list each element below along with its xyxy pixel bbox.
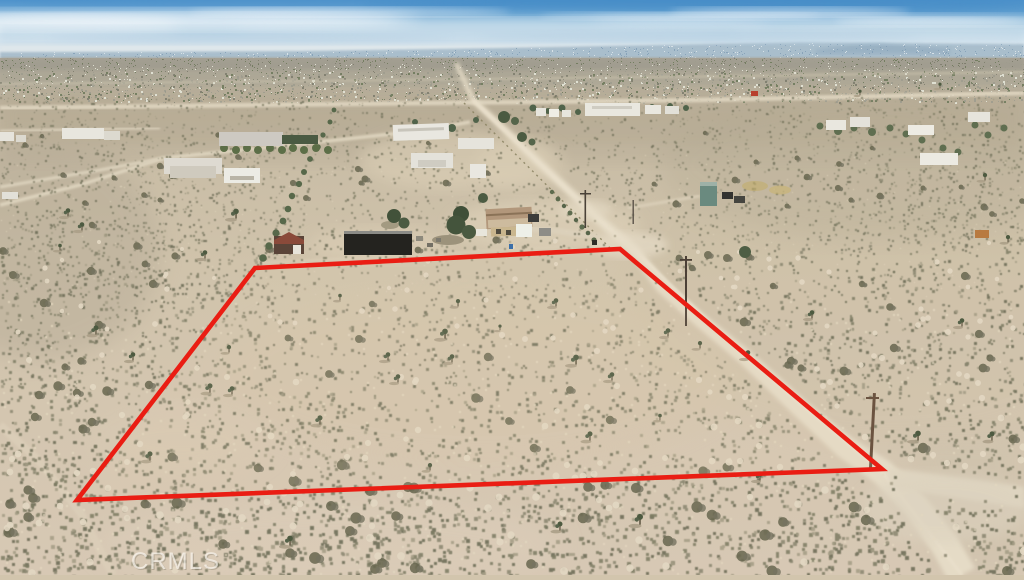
svg-text:CRMLS: CRMLS [131, 548, 220, 575]
